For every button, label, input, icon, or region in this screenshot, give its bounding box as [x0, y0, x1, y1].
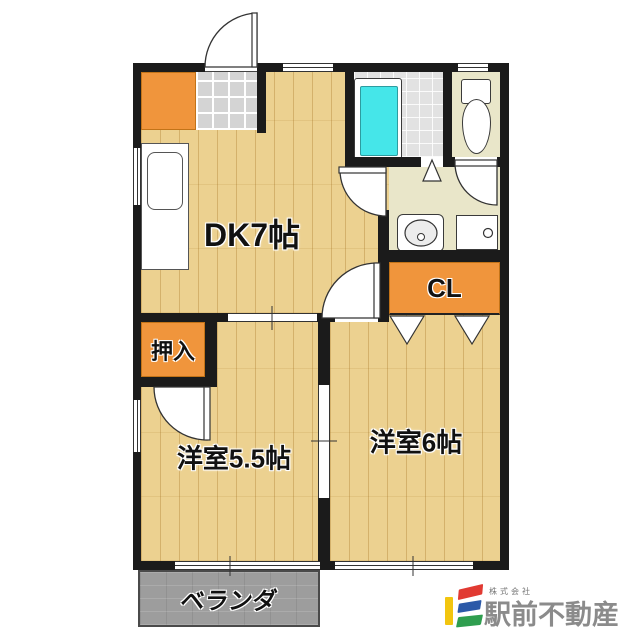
toilet-door-opening — [455, 157, 497, 167]
sliding-door-dk-room5 — [228, 313, 317, 322]
wall-bottom-a — [133, 561, 175, 570]
wall-genkan-stub — [257, 63, 266, 133]
wall-top-a — [133, 63, 205, 72]
oshiire-label: 押入 — [151, 334, 195, 366]
wall-bottom-c — [473, 561, 509, 570]
entrance-opening — [205, 63, 257, 72]
wall-washroom-bottom — [378, 250, 500, 262]
kitchen-cabinet — [141, 72, 196, 130]
veranda: ベランダ — [138, 570, 320, 627]
room6-door-opening — [335, 313, 378, 322]
genkan-tile-floor — [196, 72, 257, 130]
wall-oshiire-bottom — [133, 377, 217, 387]
floor-plan: CL 押入 ベランダ — [0, 0, 640, 640]
window-left-kitchen — [133, 148, 141, 205]
wall-right — [500, 63, 509, 570]
washbasin — [397, 214, 444, 252]
window-toilet-small — [458, 63, 488, 72]
company-name: 駅前不動産 — [484, 593, 619, 632]
sliding-door-rooms — [318, 385, 330, 498]
logo-yellow-bar-icon — [445, 597, 453, 625]
wall-washroom-left — [378, 210, 389, 322]
logo-red-bar-icon — [458, 584, 483, 600]
window-top — [283, 63, 333, 72]
bathtub — [360, 86, 398, 156]
entrance-door-swing — [205, 13, 257, 67]
dk-label: DK7帖 — [204, 210, 300, 256]
western-room-5-5-label: 洋室5.5帖 — [177, 439, 291, 476]
western-room-6-label: 洋室6帖 — [370, 423, 462, 460]
wall-oshiire-right — [205, 313, 217, 387]
window-bottom-room6 — [335, 561, 473, 570]
wall-bottom-b — [320, 561, 335, 570]
wall-bath-toilet — [443, 63, 452, 157]
washing-machine-space — [456, 215, 498, 250]
veranda-label: ベランダ — [179, 581, 280, 616]
logo-green-bar-icon — [456, 615, 483, 628]
wall-bath-left — [345, 63, 354, 167]
logo-blue-bar-icon — [457, 600, 481, 613]
window-bottom-room5 — [175, 561, 320, 570]
bath-door-opening — [421, 157, 443, 167]
kitchen-sink — [147, 152, 183, 210]
company-logo: 株式会社 駅前不動産 — [440, 580, 640, 635]
entrance-door-leaf — [252, 13, 257, 67]
oshiire-closet: 押入 — [141, 322, 205, 377]
window-left-room5 — [133, 400, 141, 452]
closet-label: CL — [427, 273, 462, 304]
closet-cl: CL — [389, 262, 500, 315]
